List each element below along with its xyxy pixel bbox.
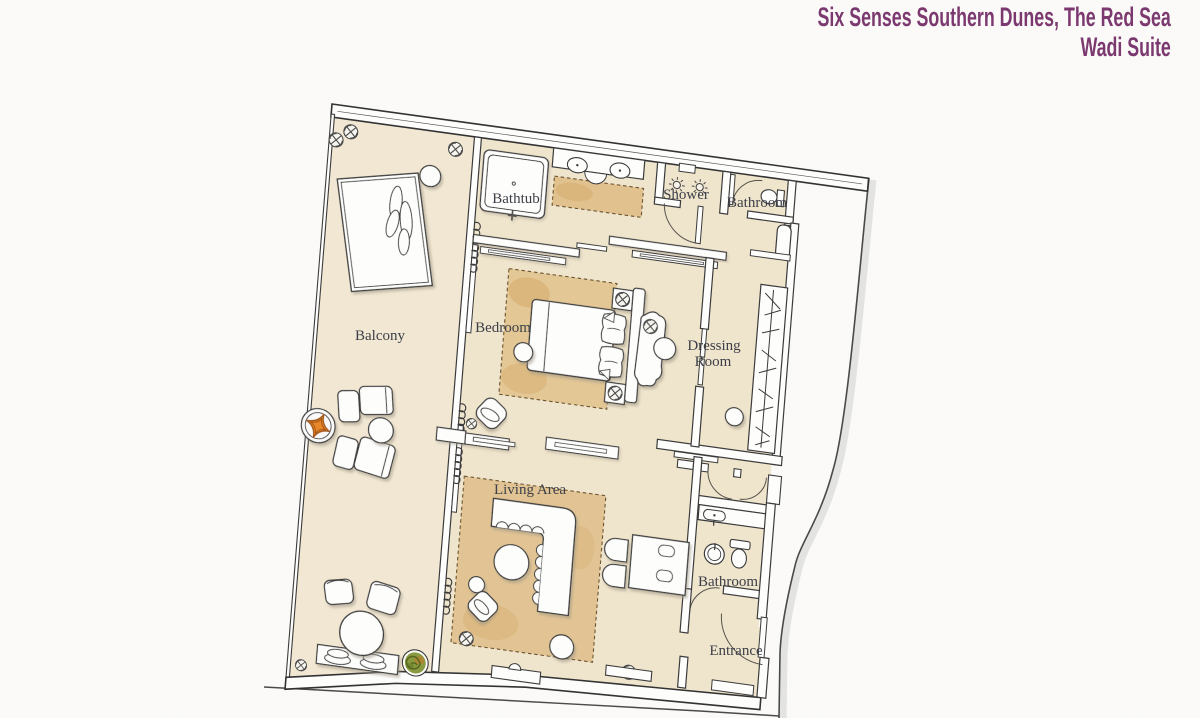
svg-text:Shower: Shower bbox=[663, 187, 709, 203]
svg-text:Dressing: Dressing bbox=[687, 338, 741, 354]
svg-text:Wadi Suite: Wadi Suite bbox=[1080, 31, 1170, 62]
svg-text:Room: Room bbox=[695, 354, 732, 370]
svg-text:Bathtub: Bathtub bbox=[492, 191, 540, 207]
svg-text:Bedroom: Bedroom bbox=[475, 320, 531, 336]
svg-text:Balcony: Balcony bbox=[355, 328, 405, 344]
svg-text:Six Senses Southern Dunes, The: Six Senses Southern Dunes, The Red Sea bbox=[818, 1, 1172, 32]
svg-text:Bathroom: Bathroom bbox=[727, 195, 787, 211]
svg-text:Bathroom: Bathroom bbox=[698, 574, 758, 590]
svg-text:Entrance: Entrance bbox=[709, 643, 763, 659]
svg-text:Living Area: Living Area bbox=[494, 482, 566, 498]
